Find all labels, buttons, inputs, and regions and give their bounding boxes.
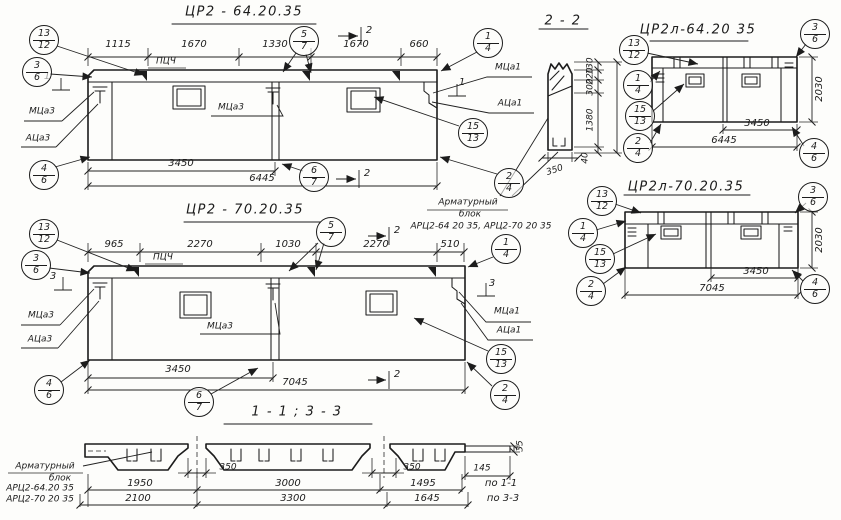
callout-top: 13: [591, 190, 613, 201]
d1-callout-1-4: 14: [473, 28, 503, 58]
callout-top: 4: [38, 379, 60, 390]
sb-note-line1: Арматурный: [15, 463, 74, 472]
r2-callout-13-12: 1312: [587, 186, 617, 216]
callout-bottom: 6: [25, 265, 47, 277]
sb-row2-3300: 3300: [280, 494, 305, 504]
callout-bottom: 4: [498, 183, 520, 195]
callout-top: 2: [498, 172, 520, 183]
callout-top: 4: [33, 164, 55, 175]
d2-section-marks: [54, 227, 495, 389]
d1-dim-top-1: 1115: [105, 40, 130, 50]
callout-bottom: 6: [804, 34, 826, 46]
d1-label-mca3-left: МЦа3: [29, 108, 55, 117]
callout-bottom: 6: [26, 72, 48, 84]
s22-dim-1380: 1380: [587, 109, 596, 132]
callout-top: 5: [320, 221, 342, 232]
d2-callout-13-12: 1312: [29, 219, 59, 249]
d2-dim-3450: 3450: [165, 365, 190, 375]
d2-label-mca1: МЦа1: [494, 308, 520, 317]
callout-bottom: 13: [629, 116, 651, 128]
d1-callout-5-7: 57: [289, 26, 319, 56]
d1-title: ЦР2 - 64.20.35: [185, 6, 303, 19]
d1-callout-15-13: 1513: [458, 118, 488, 148]
callout-bottom: 7: [293, 41, 315, 53]
r1-callout-15-13: 1513: [625, 101, 655, 131]
r2-title: ЦР2л-70.20.35: [628, 181, 745, 194]
d1-callout-6-7: 67: [299, 162, 329, 192]
callout-top: 15: [589, 248, 611, 259]
callout-top: 3: [804, 23, 826, 34]
callout-bottom: 6: [803, 153, 825, 165]
d2-callout-15-13: 1513: [486, 344, 516, 374]
callout-bottom: 7: [320, 232, 342, 244]
callout-bottom: 12: [591, 201, 613, 213]
callout-top: 5: [293, 30, 315, 41]
d2-label-aca1: АЦа1: [497, 327, 521, 336]
s22-dim-40: 40: [582, 152, 591, 163]
callout-bottom: 12: [33, 234, 55, 246]
r1-dim-6445: 6445: [711, 136, 736, 146]
callout-top: 4: [804, 278, 826, 289]
sb-row1-1495: 1495: [410, 479, 435, 489]
d2-dim-top-5: 510: [440, 240, 459, 250]
callout-top: 1: [477, 32, 499, 43]
d2-callout-1-4: 14: [491, 234, 521, 264]
sb-row1-po11: по 1-1: [485, 479, 517, 489]
callout-bottom: 4: [627, 148, 649, 160]
d1-panel: [88, 70, 437, 160]
sb-row2-po33: по 3-3: [487, 494, 519, 504]
d2-dim-top-3: 1030: [275, 240, 300, 250]
r2-callout-1-4: 14: [568, 218, 598, 248]
d1-sec2-top: 2: [366, 26, 372, 36]
d1-leaders: [21, 46, 534, 174]
callout-bottom: 12: [623, 50, 645, 62]
sb-dim-350-left: 350: [219, 464, 236, 473]
d1-callout-3-6: 36: [22, 57, 52, 87]
callout-bottom: 7: [188, 402, 210, 414]
callout-bottom: 13: [462, 133, 484, 145]
callout-bottom: 4: [477, 43, 499, 55]
d1-sec2-bottom: 2: [364, 169, 370, 179]
d2-leaders: [21, 240, 533, 394]
d1-sec1-right: 1: [459, 78, 465, 88]
callout-top: 15: [629, 105, 651, 116]
r1-callout-1-4: 14: [623, 70, 653, 100]
d1-label-mca1: МЦа1: [495, 64, 521, 73]
r1-dim-2030: 2030: [815, 76, 825, 101]
d2-label-mca3-mid: МЦа3: [207, 323, 233, 332]
callout-bottom: 12: [33, 40, 55, 52]
d2-sec3-left: 3: [50, 272, 56, 282]
d1-dim-top-2: 1670: [181, 40, 206, 50]
s22-note-line3: АРЦ2-64 20 35, АРЦ2-70 20 35: [411, 223, 552, 232]
sb-row1-3000: 3000: [275, 479, 300, 489]
sb-note-line3: АРЦ2-64.20 35: [6, 485, 74, 494]
d2-dim-top-4: 2270: [363, 240, 388, 250]
callout-bottom: 6: [33, 175, 55, 187]
callout-bottom: 6: [38, 390, 60, 402]
r1-dim-3450: 3450: [744, 119, 769, 129]
callout-top: 13: [33, 29, 55, 40]
d1-label-aca3: АЦа3: [26, 135, 50, 144]
sb-row1-1950: 1950: [127, 479, 152, 489]
d1-label-aca1: АЦа1: [498, 100, 522, 109]
callout-bottom: 4: [627, 85, 649, 97]
d2-dim-top-1: 965: [104, 240, 123, 250]
d1-callout-13-12: 1312: [29, 25, 59, 55]
d2-sec2-bottom: 2: [394, 370, 400, 380]
callout-top: 1: [572, 222, 594, 233]
r2-dim-2030: 2030: [815, 227, 825, 252]
callout-top: 13: [33, 223, 55, 234]
sb-row2-2100: 2100: [125, 494, 150, 504]
d1-callout-2-4: 24: [494, 168, 524, 198]
callout-top: 13: [623, 39, 645, 50]
r1-callout-13-12: 1312: [619, 35, 649, 65]
callout-bottom: 13: [490, 359, 512, 371]
r2-dim-7045: 7045: [699, 284, 724, 294]
blueprint-sheet: ЦР2 - 64.20.35 1115 1670 1330 1670 660 П…: [0, 0, 841, 520]
callout-top: 3: [26, 61, 48, 72]
callout-bottom: 4: [495, 249, 517, 261]
d2-sec3-right: 3: [489, 279, 495, 289]
callout-top: 3: [25, 254, 47, 265]
callout-top: 6: [188, 391, 210, 402]
d2-label-aca3: АЦа3: [28, 336, 52, 345]
sb-note-line2: блок: [49, 475, 71, 484]
sb-note-line4: АРЦ2-70 20 35: [6, 496, 74, 505]
d2-label-pcch: ПЦЧ: [153, 254, 173, 263]
r2-panel: [624, 195, 798, 268]
d2-callout-3-6: 36: [21, 250, 51, 280]
callout-top: 1: [495, 238, 517, 249]
d2-callout-5-7: 57: [316, 217, 346, 247]
callout-top: 4: [803, 142, 825, 153]
sb-title: 1 - 1 ; 3 - 3: [251, 406, 342, 419]
callout-bottom: 6: [802, 197, 824, 209]
d1-dim-top-4: 1670: [343, 40, 368, 50]
s22-title: 2 - 2: [545, 15, 582, 28]
d1-dim-3450: 3450: [168, 159, 193, 169]
r1-callout-3-6: 36: [800, 19, 830, 49]
r2-callout-4-6: 46: [800, 274, 830, 304]
d2-dim-top-2: 2270: [187, 240, 212, 250]
r2-callout-15-13: 1513: [585, 244, 615, 274]
callout-top: 15: [462, 122, 484, 133]
r1-panel: [650, 41, 797, 122]
r1-callout-2-4: 24: [623, 133, 653, 163]
d2-title: ЦР2 - 70.20.35: [186, 204, 304, 217]
linework: [0, 0, 841, 520]
callout-bottom: 6: [804, 289, 826, 301]
d2-sec2-top: 2: [394, 226, 400, 236]
sb-row2-1645: 1645: [414, 494, 439, 504]
callout-bottom: 7: [303, 177, 325, 189]
d2-callout-6-7: 67: [184, 387, 214, 417]
s22-note-line2: блок: [459, 211, 481, 220]
callout-top: 3: [802, 186, 824, 197]
sb-dim-350-right: 350: [403, 464, 420, 473]
sb-section: [85, 424, 510, 478]
callout-top: 1: [627, 74, 649, 85]
sb-dim-145: 145: [473, 465, 490, 474]
sb-dim-35: 35: [517, 440, 526, 451]
r2-dim-3450: 3450: [743, 267, 768, 277]
d1-dim-6445: 6445: [249, 174, 274, 184]
d1-label-pcch: ПЦЧ: [156, 58, 176, 67]
callout-bottom: 13: [589, 259, 611, 271]
callout-bottom: 4: [572, 233, 594, 245]
r1-callout-4-6: 46: [799, 138, 829, 168]
callout-top: 6: [303, 166, 325, 177]
d1-callout-4-6: 46: [29, 160, 59, 190]
callout-top: 2: [494, 384, 516, 395]
callout-bottom: 4: [580, 291, 602, 303]
d2-callout-4-6: 46: [34, 375, 64, 405]
callout-top: 15: [490, 348, 512, 359]
d1-label-mca3-mid: МЦа3: [218, 104, 244, 113]
callout-top: 2: [580, 280, 602, 291]
r1-title: ЦР2л-64.20 35: [640, 24, 757, 37]
r2-callout-3-6: 36: [798, 182, 828, 212]
d2-label-mca3-left: МЦа3: [28, 312, 54, 321]
d2-dim-7045: 7045: [282, 378, 307, 388]
d1-dim-top-5: 660: [409, 40, 428, 50]
d1-dim-top-3: 1330: [262, 40, 287, 50]
callout-top: 2: [627, 137, 649, 148]
s22-dim-300: 300: [587, 78, 596, 95]
r2-callout-2-4: 24: [576, 276, 606, 306]
callout-bottom: 4: [494, 395, 516, 407]
d2-callout-2-4: 24: [490, 380, 520, 410]
s22-note-line1: Арматурный: [438, 199, 497, 208]
